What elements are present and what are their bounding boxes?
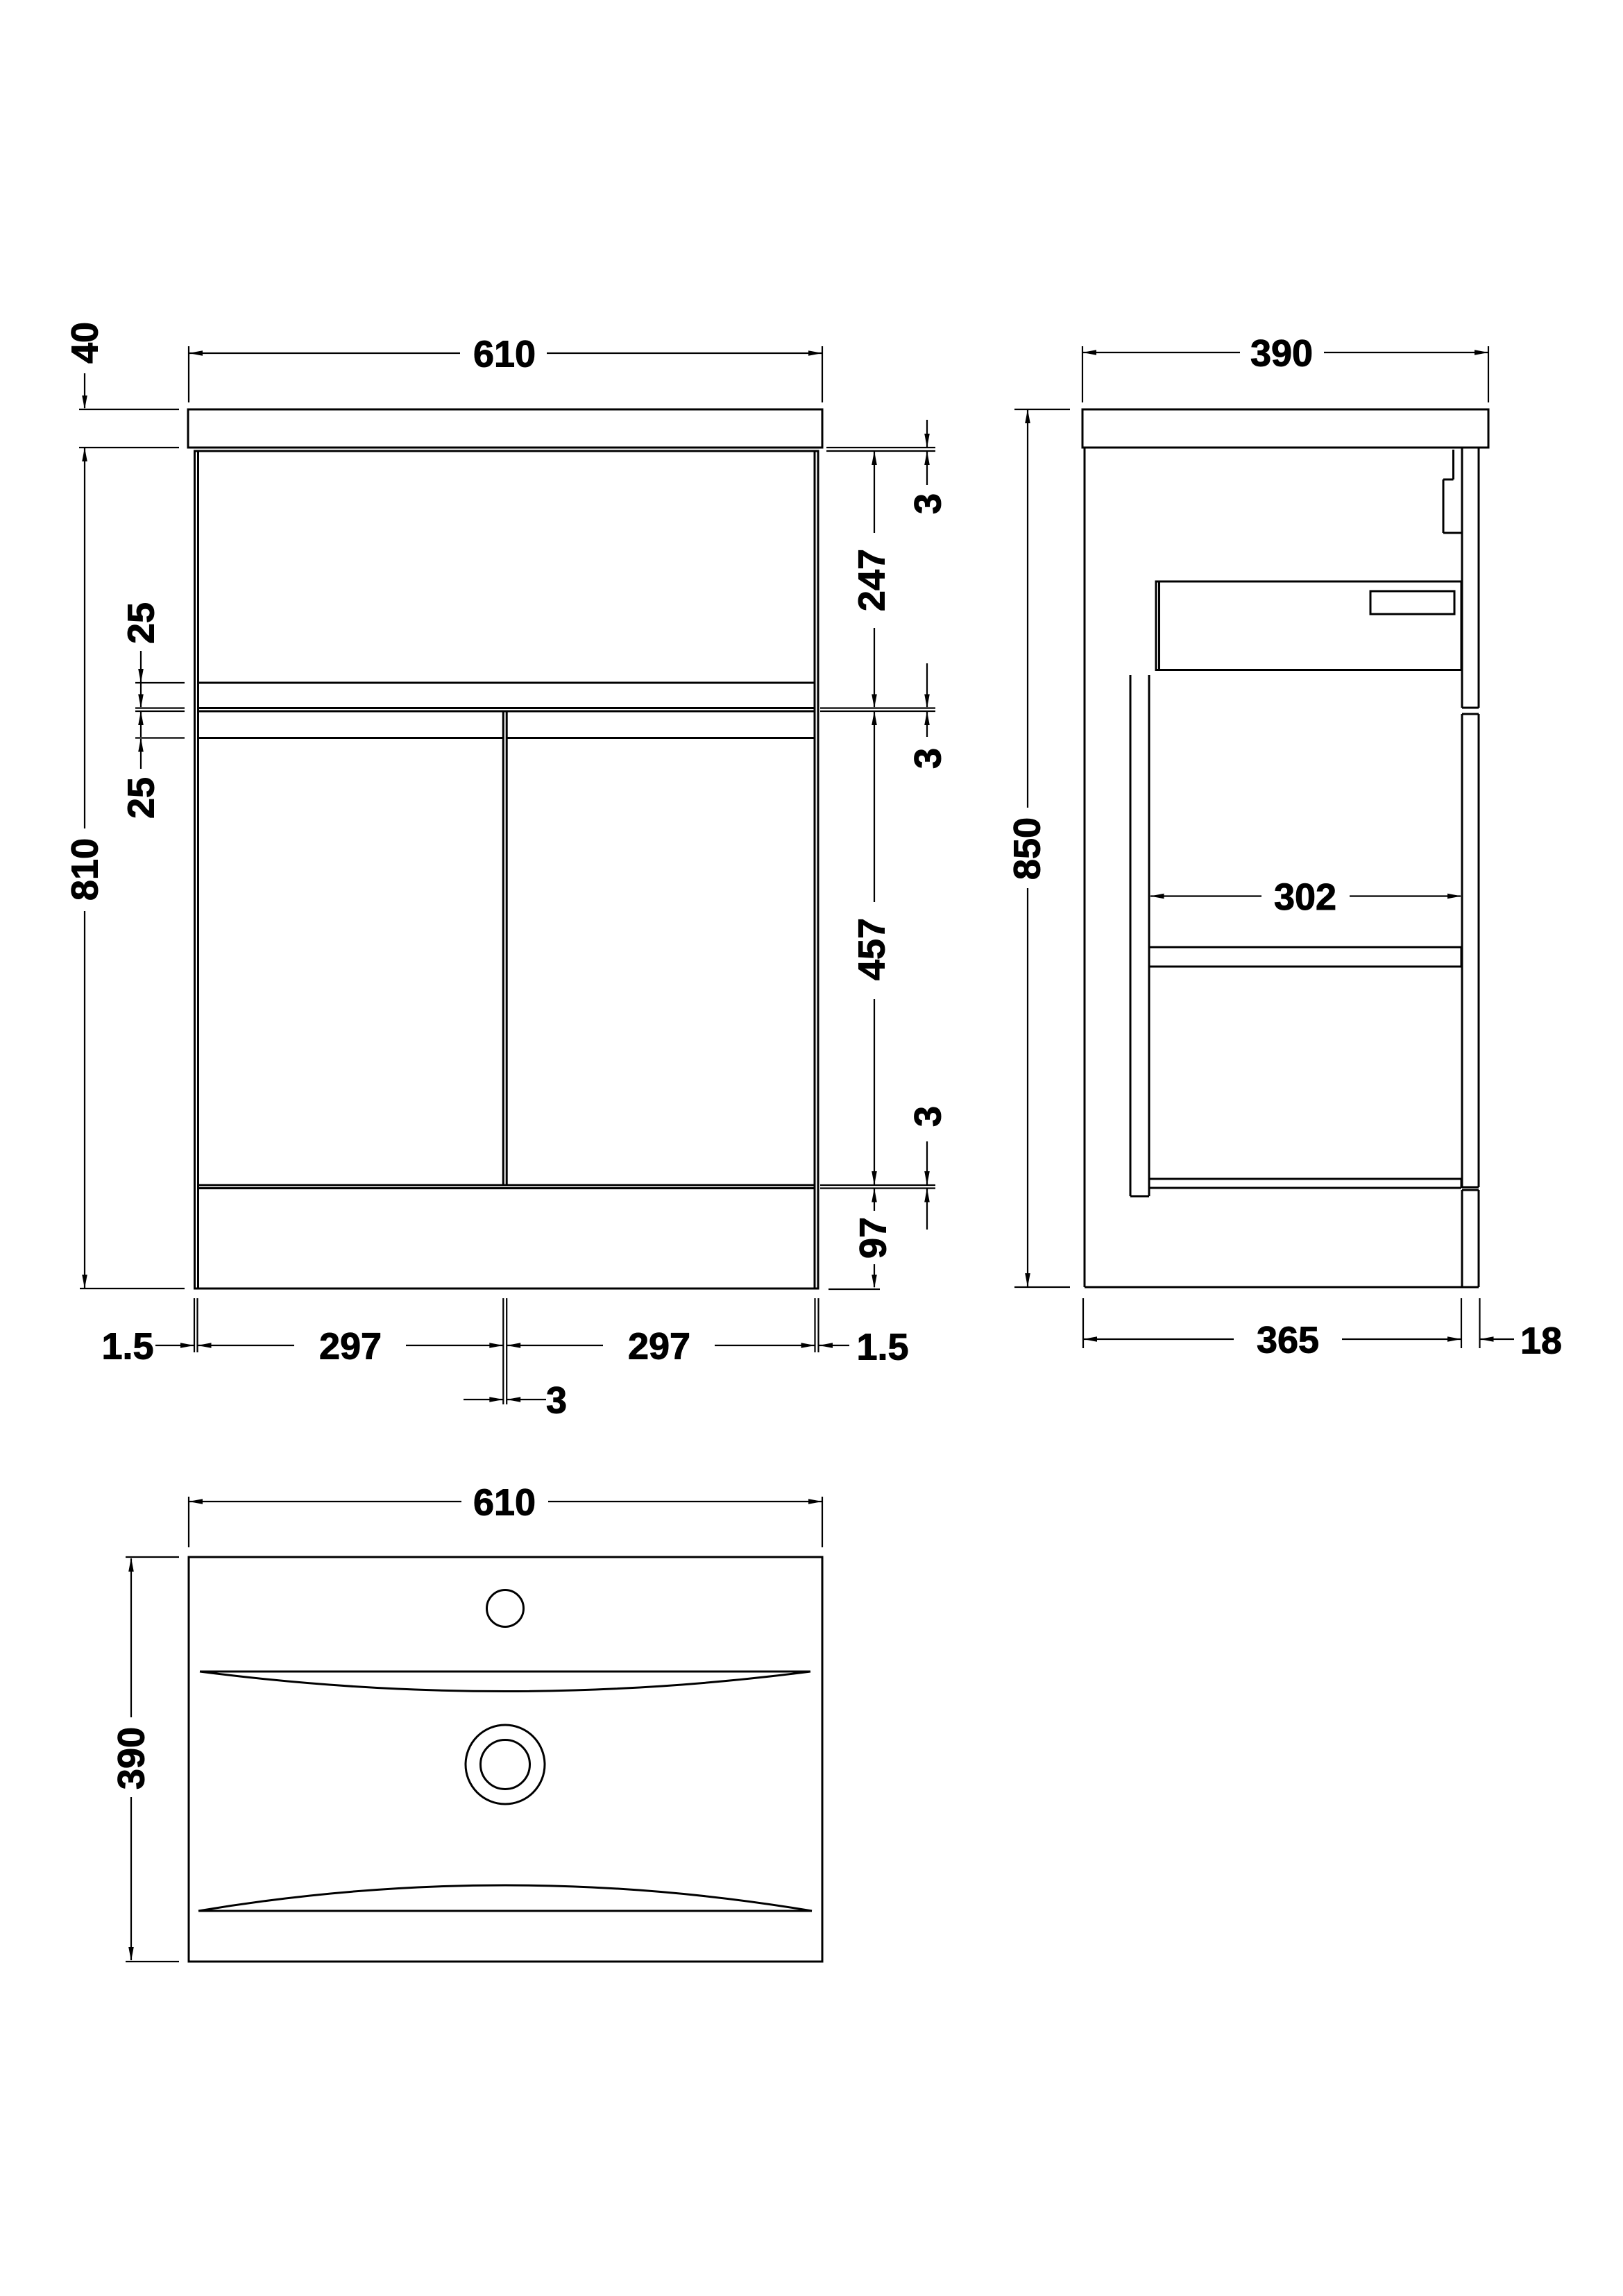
svg-text:1.5: 1.5 — [101, 1325, 153, 1367]
svg-text:97: 97 — [852, 1217, 894, 1259]
svg-text:1.5: 1.5 — [856, 1326, 908, 1368]
svg-text:3: 3 — [907, 1106, 949, 1127]
svg-text:390: 390 — [110, 1727, 152, 1789]
svg-text:850: 850 — [1006, 817, 1048, 880]
svg-text:3: 3 — [546, 1379, 567, 1421]
svg-text:457: 457 — [851, 918, 892, 980]
svg-text:610: 610 — [473, 333, 536, 375]
svg-text:365: 365 — [1257, 1319, 1319, 1361]
svg-text:297: 297 — [319, 1325, 382, 1367]
svg-text:302: 302 — [1274, 876, 1336, 918]
svg-text:18: 18 — [1520, 1320, 1562, 1361]
svg-text:247: 247 — [851, 549, 892, 611]
svg-text:610: 610 — [473, 1481, 536, 1523]
svg-text:297: 297 — [628, 1325, 690, 1367]
svg-text:3: 3 — [907, 748, 949, 769]
svg-text:810: 810 — [64, 838, 105, 901]
svg-text:25: 25 — [120, 777, 162, 819]
svg-text:3: 3 — [907, 493, 949, 514]
svg-text:25: 25 — [120, 602, 162, 644]
svg-text:390: 390 — [1250, 332, 1313, 374]
svg-text:40: 40 — [64, 322, 105, 364]
